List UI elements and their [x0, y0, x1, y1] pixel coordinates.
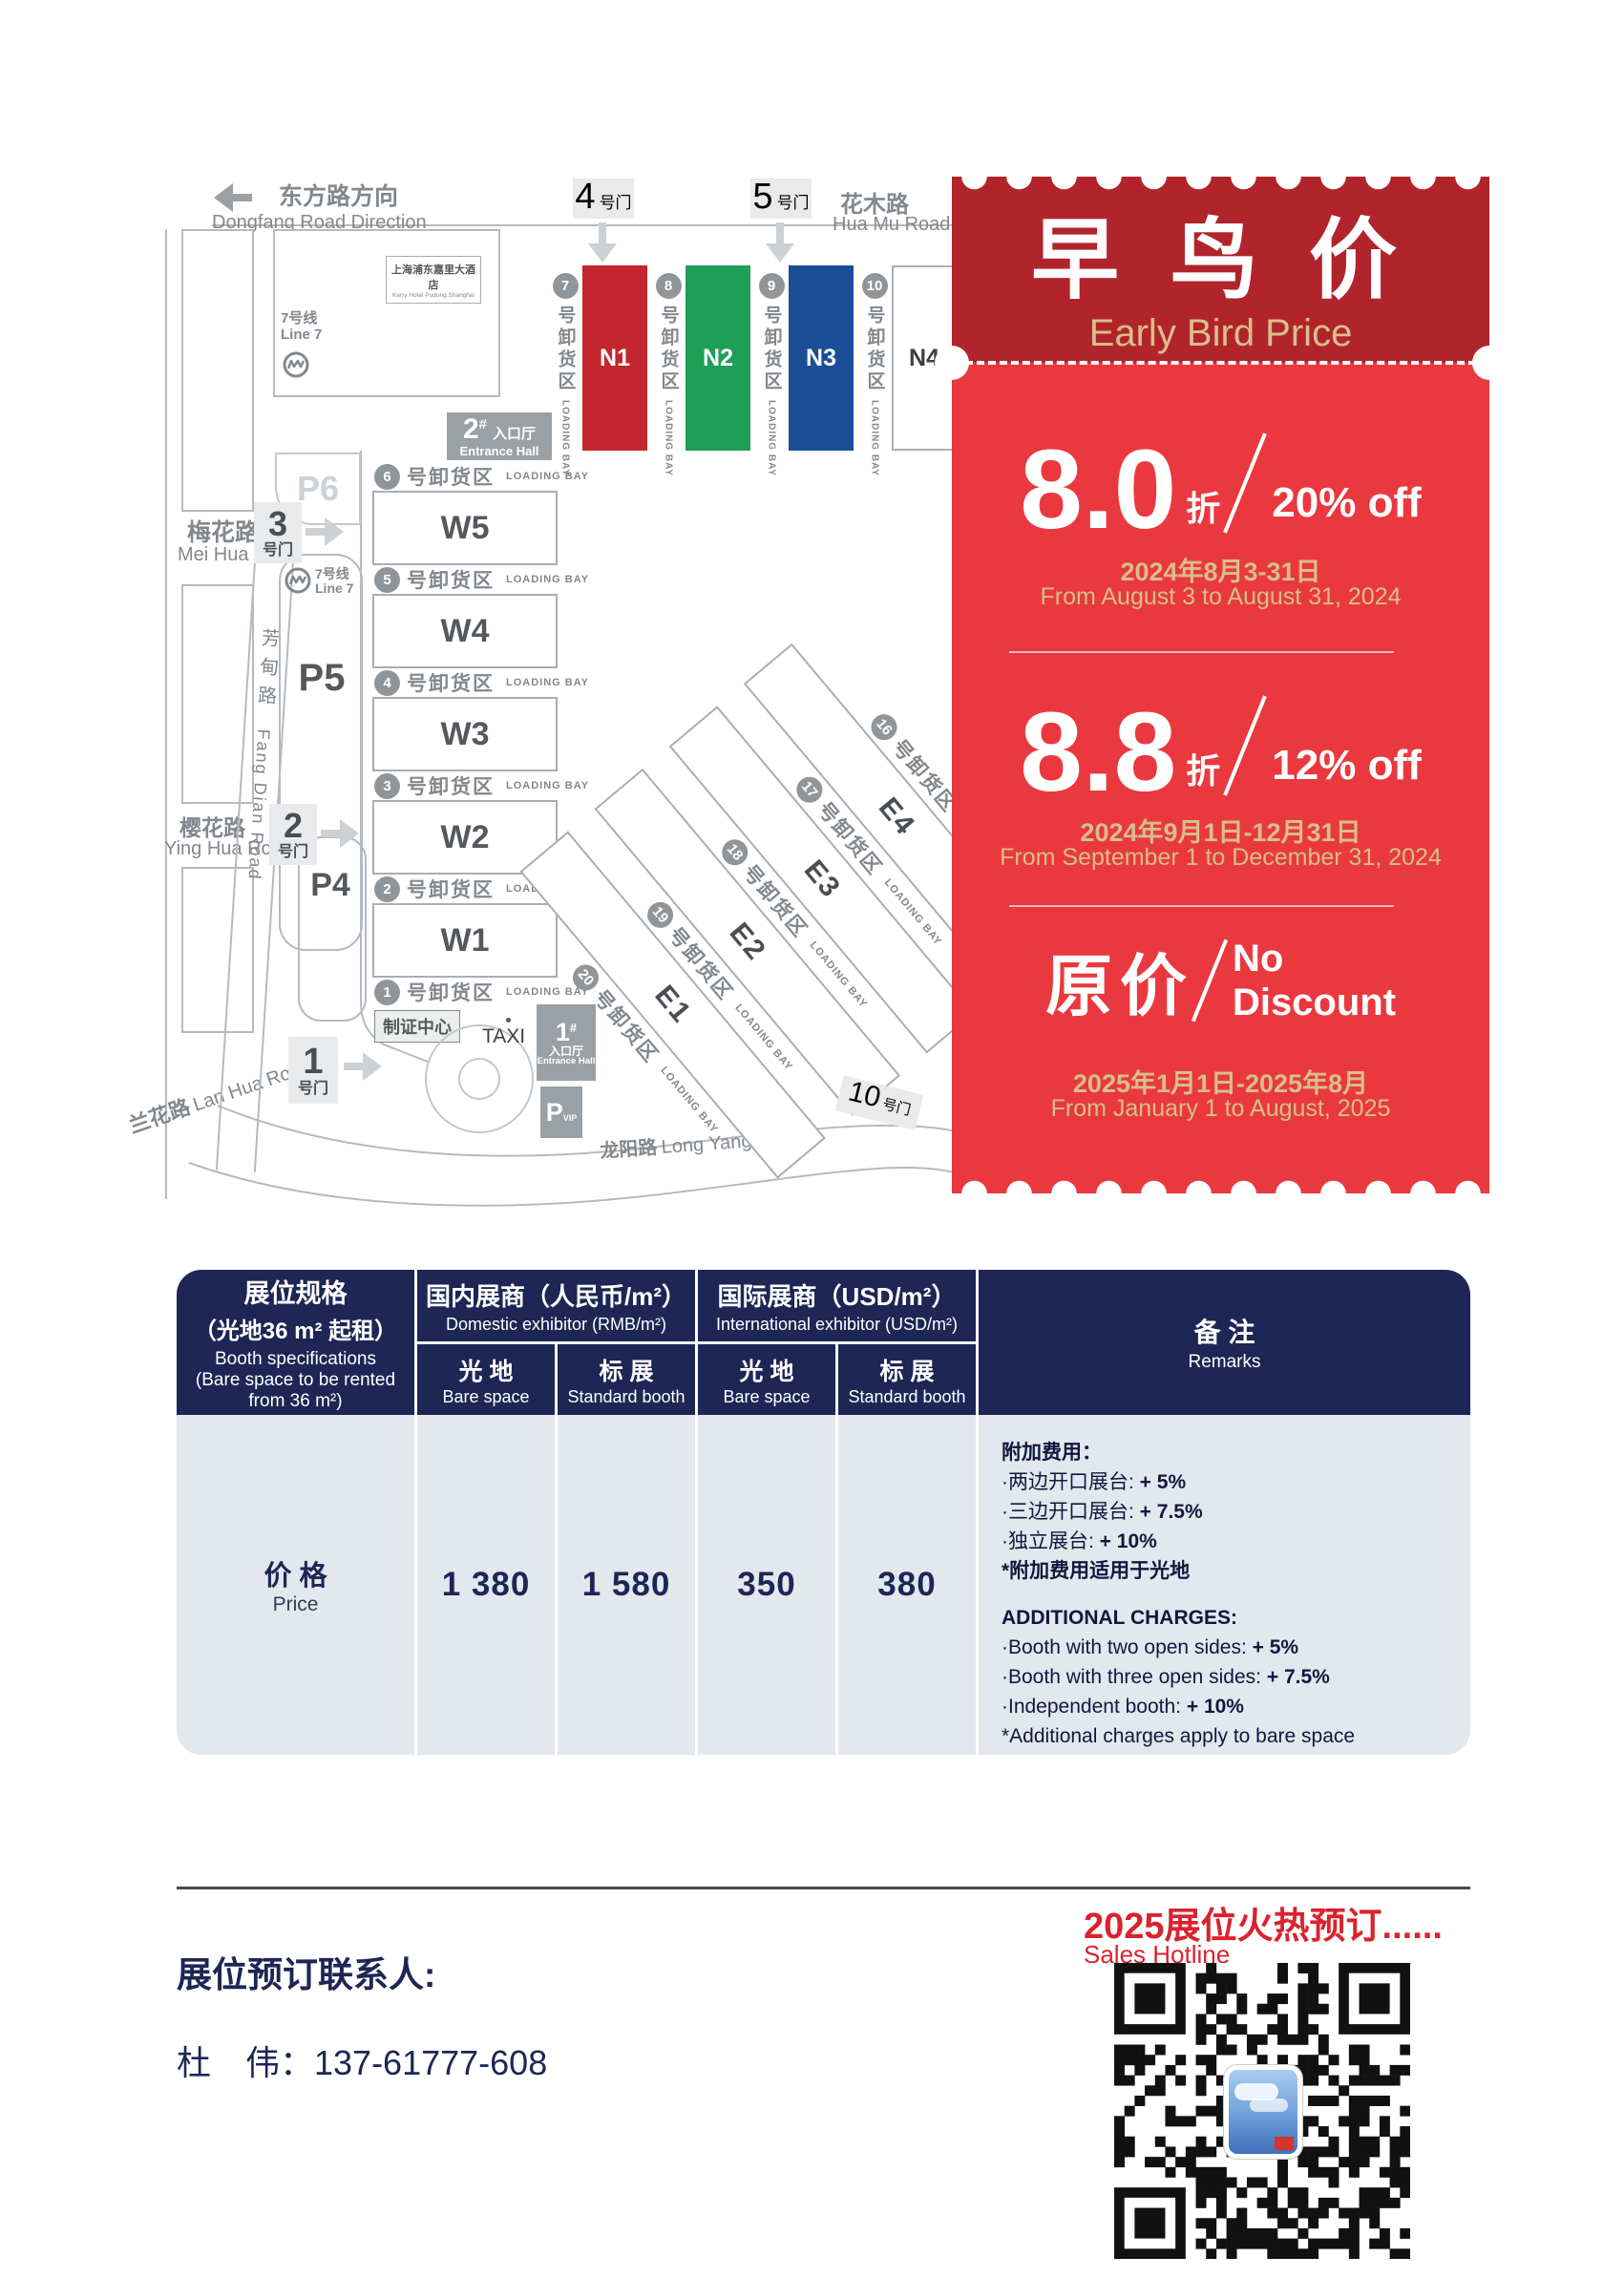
remark-zh-note: *附加费用适用于光地 [1002, 1556, 1190, 1586]
remark-en-item: ·Booth with two open sides: + 5% [1002, 1633, 1298, 1662]
remark-en-item: ·Booth with three open sides: + 7.5% [1002, 1662, 1330, 1692]
gate-5: 5 号门 [750, 179, 812, 219]
remark-zh-item: ·独立展台: + 10% [1002, 1527, 1157, 1556]
hall-w4: W4 [372, 594, 558, 668]
city-block-1 [181, 229, 254, 512]
tier-divider-2 [1009, 905, 1394, 907]
remark-en-note: *Additional charges apply to bare space [1002, 1721, 1355, 1751]
th-dom-bare: 光 地 Bare space [417, 1344, 558, 1415]
tier3-discount-word: Discount [1233, 981, 1396, 1024]
th-booth-spec: 展位规格 （光地36 m² 起租） Booth specifications (… [177, 1270, 417, 1415]
taxi-label: TAXI [482, 1025, 525, 1048]
loading-bay-3: 3 号卸货区 LOADING BAY [374, 771, 589, 800]
price-table: 展位规格 （光地36 m² 起租） Booth specifications (… [177, 1270, 1470, 1755]
remark-en-item: ·Independent booth: + 10% [1002, 1692, 1244, 1721]
roundabout-inner [458, 1058, 500, 1100]
coupon-title-zh: 早 鸟 价 [952, 217, 1489, 305]
tier1-percent: 20% off [1272, 479, 1421, 527]
gate-3: 3 号门 [254, 502, 302, 563]
th-intl-bare: 光 地 Bare space [698, 1344, 838, 1415]
parking-p5-label: P5 [290, 657, 353, 700]
tier1-date-en: From August 3 to August 31, 2024 [952, 583, 1489, 611]
tier2-date-en: From September 1 to December 31, 2024 [952, 844, 1489, 872]
tier2-row: 8.8 折 12% off [952, 673, 1489, 799]
loading-bay-5: 5 号卸货区 LOADING BAY [374, 565, 589, 594]
entrance-hall-2: 2 # 入口厅 Entrance Hall [447, 412, 552, 460]
hall-n1: N1 [582, 265, 647, 451]
coupon-title-en: Early Bird Price [952, 312, 1489, 355]
loading-bay-7: 7 号卸货区 LOADING BAY [552, 273, 579, 476]
early-bird-coupon: 早 鸟 价 Early Bird Price 8.0 折 20% off 202… [952, 177, 1489, 1193]
meihua-road-label-zh: 梅花路 [187, 514, 259, 548]
qr-center-icon [1224, 2065, 1302, 2159]
gate-2-arrow-icon [321, 819, 361, 848]
line7-label-north: 7号线 Line 7 [281, 311, 322, 343]
huamu-road-label-en: Hua Mu Road [833, 214, 950, 236]
hall-w3: W3 [372, 697, 558, 771]
hall-n3: N3 [789, 265, 854, 451]
gate-1-arrow-icon [344, 1052, 384, 1081]
hotel-label-box: 上海浦东嘉里大酒店 Kerry Hotel Pudong Shanghai [386, 256, 481, 304]
venue-map: 东方路方向 Dongfang Road Direction 4 号门 5 号门 … [0, 0, 1012, 1241]
hall-n2: N2 [685, 265, 750, 451]
td-value-dom-std: 1 580 [558, 1415, 698, 1755]
tier3-original-price: 原价 [1045, 933, 1194, 1029]
loading-bay-6: 6 号卸货区 LOADING BAY [374, 462, 589, 491]
metro-icon-north [283, 351, 309, 378]
tier2-discount: 8.8 [1020, 707, 1176, 799]
contact-label: 展位预订联系人: [177, 1946, 435, 1997]
coupon-notch-left [935, 346, 969, 380]
tier3-no: No [1233, 937, 1396, 981]
th-intl-std: 标 展 Standard booth [838, 1344, 979, 1415]
loading-bay-9: 9 号卸货区 LOADING BAY [758, 273, 785, 476]
parking-vip: P VIP [540, 1086, 582, 1138]
dongfang-road-label-zh: 东方路方向 [279, 178, 398, 212]
flyer-page: 东方路方向 Dongfang Road Direction 4 号门 5 号门 … [0, 0, 1624, 2278]
tier3-row: 原价 No Discount [952, 931, 1489, 1030]
loading-bay-4: 4 号卸货区 LOADING BAY [374, 668, 589, 697]
hotel-name-en: Kerry Hotel Pudong Shanghai [392, 292, 475, 299]
parking-p4-label: P4 [302, 867, 359, 904]
tier1-slash [1223, 432, 1267, 533]
td-value-intl-bare: 350 [698, 1415, 838, 1755]
loading-bay-8: 8 号卸货区 LOADING BAY [655, 273, 682, 476]
coupon-perforation [965, 361, 1476, 365]
gate-5-arrow-icon [766, 222, 794, 264]
loading-bay-1: 1 号卸货区 LOADING BAY [374, 978, 589, 1006]
tier1-row: 8.0 折 20% off [952, 411, 1489, 537]
remark-zh-item: ·三边开口展台: + 7.5% [1002, 1497, 1203, 1527]
loading-bay-10: 10 号卸货区 LOADING BAY [861, 273, 888, 476]
dongfang-arrow-icon [212, 183, 252, 212]
qr-code [1114, 1963, 1410, 2259]
hotel-name-zh: 上海浦东嘉里大酒店 [387, 262, 480, 292]
th-domestic: 国内展商（人民币/m²） Domestic exhibitor (RMB/m²) [417, 1270, 698, 1344]
td-value-dom-bare: 1 380 [417, 1415, 558, 1755]
line7-label-south: 7号线 Line 7 [315, 567, 353, 597]
gate-4-arrow-icon [588, 222, 617, 264]
tier1-discount: 8.0 [1020, 444, 1176, 537]
gate-3-arrow-icon [306, 517, 346, 546]
contact-name-phone: 杜 伟：137-61777-608 [177, 2035, 547, 2085]
tier2-percent: 12% off [1272, 742, 1421, 790]
remark-zh-item: ·两边开口展台: + 5% [1002, 1467, 1186, 1497]
coupon-scallop-top [952, 163, 1489, 190]
flag-icon [1275, 2137, 1294, 2150]
th-dom-std: 标 展 Standard booth [558, 1344, 698, 1415]
th-remarks: 备 注 Remarks [979, 1270, 1470, 1415]
td-remarks: 附加费用： ·两边开口展台: + 5% ·三边开口展台: + 7.5% ·独立展… [979, 1415, 1470, 1755]
td-price-label: 价 格 Price [177, 1415, 417, 1755]
entrance-hall-1: 1 # 入口厅 Entrance Hall [537, 1004, 596, 1081]
gate-2: 2 号门 [269, 804, 317, 865]
tier3-date-en: From January 1 to August, 2025 [952, 1095, 1489, 1123]
metro-icon-south [285, 567, 311, 594]
gate-1: 1 号门 [288, 1037, 338, 1104]
td-value-intl-std: 380 [838, 1415, 979, 1755]
th-international: 国际展商（USD/m²） International exhibitor (US… [698, 1270, 979, 1344]
footer-divider [177, 1887, 1470, 1889]
coupon-notch-right [1472, 346, 1507, 380]
coupon-scallop-bottom [952, 1180, 1489, 1207]
tier2-slash [1223, 695, 1267, 795]
taxi-dot [506, 1018, 511, 1023]
yinghua-road-label-zh: 樱花路 [179, 810, 245, 842]
tier3-slash [1192, 939, 1228, 1023]
tier-divider-1 [1009, 651, 1394, 653]
gate-4: 4 号门 [573, 179, 634, 219]
remark-en-title: ADDITIONAL CHARGES: [1002, 1603, 1237, 1633]
hall-w5: W5 [372, 491, 558, 565]
